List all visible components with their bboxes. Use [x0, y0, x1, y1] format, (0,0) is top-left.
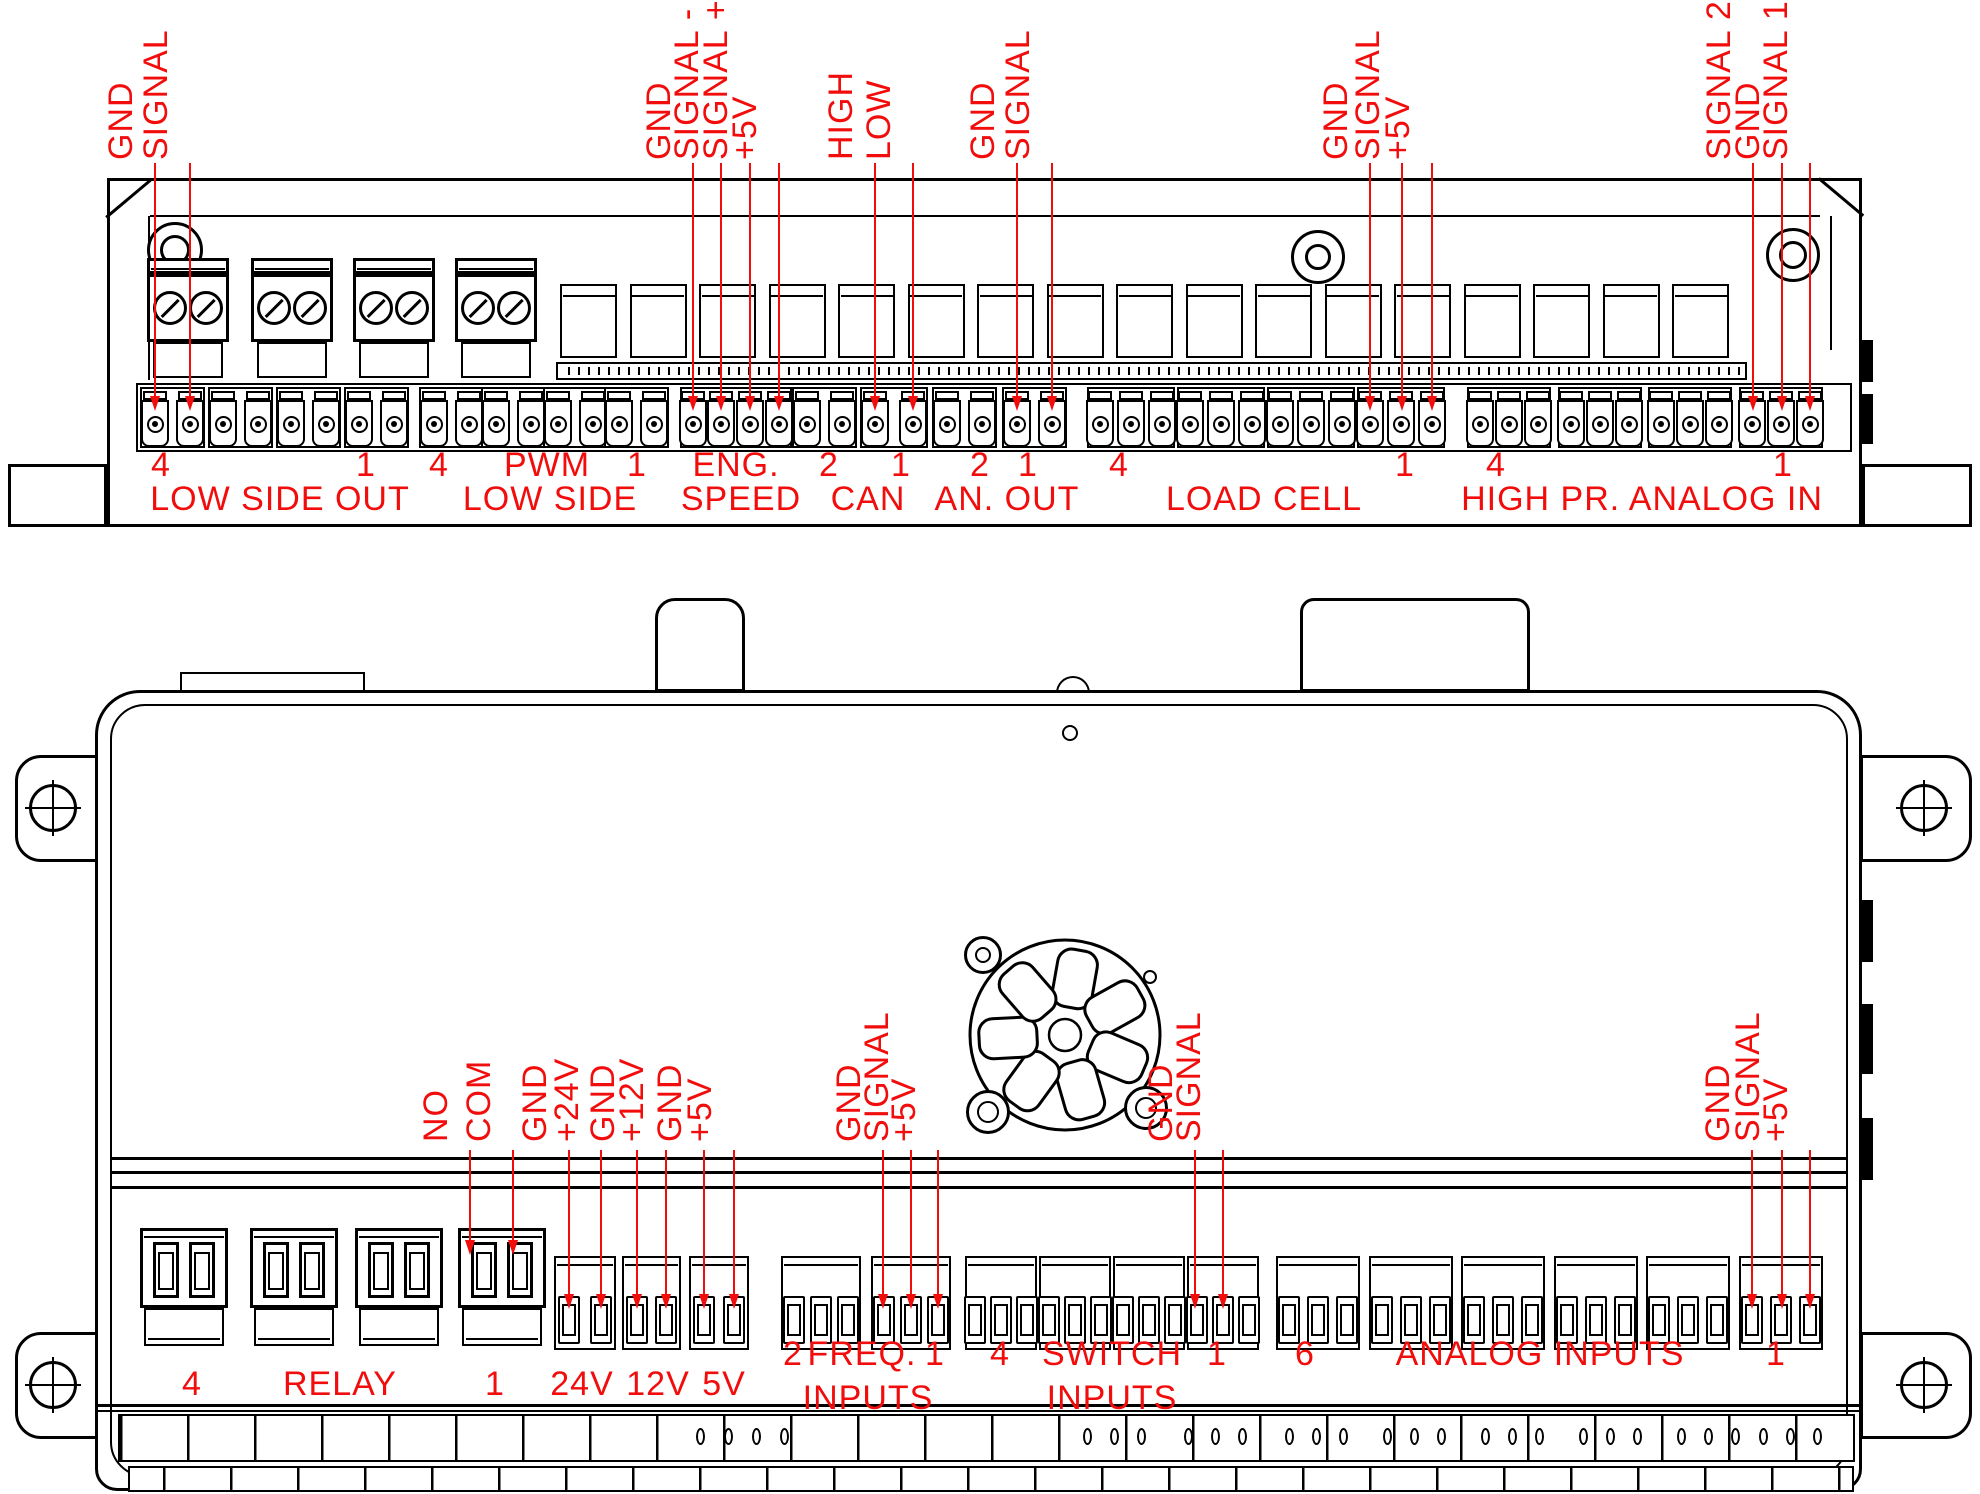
- side-tab: [1862, 394, 1873, 444]
- edge-line: [1397, 295, 1449, 297]
- section-label-switch: SWITCH: [1042, 1336, 1182, 1372]
- vent-hole: [1383, 1428, 1392, 1445]
- edge-line: [1649, 1264, 1727, 1266]
- pin-clip: [246, 391, 270, 400]
- edge-line: [357, 268, 431, 270]
- fan-boss-small: [1143, 970, 1157, 984]
- edge-line: [258, 1338, 330, 1340]
- vent-hole: [1238, 1428, 1247, 1445]
- pin-slot: [1652, 1304, 1666, 1336]
- pin-clip: [279, 391, 303, 400]
- channel-number: 1: [1018, 447, 1038, 483]
- fan-boss-hole: [975, 947, 991, 963]
- leader-line: [568, 1150, 570, 1294]
- leader-arrowhead: [1012, 396, 1022, 411]
- edge-line: [1923, 1357, 1925, 1413]
- leader-arrowhead: [1218, 1294, 1228, 1309]
- pin-center: [776, 421, 782, 427]
- case-post: [655, 598, 745, 692]
- pin-slot: [1068, 1304, 1082, 1336]
- pin-center: [690, 421, 696, 427]
- leader-line: [600, 1150, 602, 1294]
- channel-number: 1: [925, 1336, 945, 1372]
- pin-slot: [1375, 1304, 1389, 1336]
- pin-center: [431, 421, 437, 427]
- leader-line: [1401, 163, 1403, 396]
- pin-center: [391, 421, 397, 427]
- edge-line: [1466, 295, 1518, 297]
- pin-label-24v: +24V: [550, 1058, 584, 1142]
- edge-line: [1557, 1264, 1635, 1266]
- fan-boss-hole: [977, 1101, 999, 1123]
- leader-line: [1051, 163, 1053, 396]
- pin-center: [1687, 421, 1693, 427]
- pin-center: [555, 421, 561, 427]
- edge-line: [95, 1404, 1862, 1407]
- vent-hole: [752, 1428, 761, 1445]
- pin-clip: [546, 391, 570, 400]
- pin-clip: [1240, 391, 1264, 400]
- section-label-pwm: PWM: [504, 447, 590, 483]
- section-label-relay: RELAY: [283, 1366, 397, 1402]
- leader-arrowhead: [465, 1240, 475, 1255]
- pin-clip: [1150, 391, 1174, 400]
- pin-slot: [1340, 1304, 1354, 1336]
- leader-line: [1752, 163, 1754, 396]
- pin-center: [1597, 421, 1603, 427]
- leader-arrowhead: [870, 396, 880, 411]
- pin-center: [1658, 421, 1664, 427]
- vent-hole: [1339, 1428, 1348, 1445]
- edge-line: [255, 268, 329, 270]
- pin-center: [1367, 421, 1373, 427]
- leader-line: [1194, 1150, 1196, 1294]
- case-block: [1300, 598, 1530, 692]
- leader-arrowhead: [716, 396, 726, 411]
- pin-clip: [1559, 391, 1583, 400]
- leader-arrowhead: [699, 1294, 709, 1309]
- vent-hole: [1579, 1428, 1588, 1445]
- pin-clip: [1468, 391, 1492, 400]
- channel-number: 4: [182, 1366, 202, 1402]
- pin-center: [651, 421, 657, 427]
- pin-slot: [1242, 1304, 1256, 1336]
- side-tab: [1862, 1118, 1873, 1180]
- edge-line: [1605, 295, 1657, 297]
- section-label-eng: ENG.: [692, 447, 779, 483]
- vent-hole: [1731, 1428, 1740, 1445]
- pin-label-gnd: GND: [1319, 81, 1353, 160]
- pin-center: [1014, 421, 1020, 427]
- edge-line: [466, 1338, 538, 1340]
- relay-tab: [254, 1308, 334, 1346]
- edge-line: [462, 1236, 542, 1238]
- pin-label-5v: +5V: [683, 1078, 717, 1142]
- circle-mark: [1779, 241, 1807, 269]
- pin-clip: [970, 391, 994, 400]
- pin-center: [255, 421, 261, 427]
- leader-arrowhead: [596, 1294, 606, 1309]
- leader-arrowhead: [564, 1294, 574, 1309]
- pin-center: [590, 421, 596, 427]
- pin-slot: [1710, 1304, 1724, 1336]
- leader-line: [912, 163, 914, 396]
- pin-clip: [1209, 391, 1233, 400]
- pin-center: [718, 421, 724, 427]
- leader-arrowhead: [1748, 396, 1758, 411]
- section-label-freq-inputs-2: INPUTS: [803, 1380, 934, 1416]
- pin-slot: [1311, 1304, 1325, 1336]
- pin-clip: [1617, 391, 1641, 400]
- leader-line: [1016, 163, 1018, 396]
- pin-center: [1398, 421, 1404, 427]
- section-label-24v: 24V: [550, 1366, 614, 1402]
- section-label-analog-inputs: ANALOG INPUTS: [1396, 1336, 1685, 1372]
- pin-slot: [1282, 1304, 1296, 1336]
- edge-line: [632, 295, 684, 297]
- edge-line: [625, 1264, 678, 1266]
- pin-clip: [347, 391, 371, 400]
- front-strip-row: [118, 1414, 1855, 1462]
- leader-arrowhead: [774, 396, 784, 411]
- leader-line: [749, 163, 751, 396]
- terminal-base: [461, 342, 531, 378]
- pin-slot: [1433, 1304, 1447, 1336]
- screw-terminal-top: [147, 258, 229, 274]
- vent-hole: [1285, 1428, 1294, 1445]
- edge-line: [702, 295, 754, 297]
- screw-terminal-top: [353, 258, 435, 274]
- section-label-low-side-out: LOW SIDE OUT: [150, 481, 409, 517]
- edge-line: [1372, 1264, 1450, 1266]
- pin-slot: [1560, 1304, 1574, 1336]
- channel-number: 1: [1766, 1336, 1786, 1372]
- channel-number: 6: [1295, 1336, 1315, 1372]
- edge-line: [1119, 295, 1171, 297]
- leader-line: [910, 1150, 912, 1294]
- pin-label-5v: +5V: [887, 1078, 921, 1142]
- pin-center: [872, 421, 878, 427]
- pin-slot: [1589, 1304, 1603, 1336]
- relay-tab: [462, 1308, 542, 1346]
- leader-line: [665, 1150, 667, 1294]
- pin-label-5v: +5V: [1759, 1078, 1793, 1142]
- pin-slot: [814, 1304, 828, 1336]
- pin-center: [1807, 421, 1813, 427]
- leader-line: [1809, 163, 1811, 396]
- leader-line: [1809, 1150, 1811, 1294]
- pin-clip: [1588, 391, 1612, 400]
- relay-slot: [512, 1252, 528, 1290]
- terminal-base: [257, 342, 327, 378]
- pin-clip: [382, 391, 406, 400]
- pin-slot: [1168, 1304, 1182, 1336]
- edge-line: [110, 1171, 1848, 1174]
- pin-clip: [1178, 391, 1202, 400]
- pin-center: [220, 421, 226, 427]
- leader-arrowhead: [1427, 396, 1437, 411]
- pin-slot: [1404, 1304, 1418, 1336]
- edge-line: [1675, 295, 1727, 297]
- leader-arrowhead: [1047, 396, 1057, 411]
- pin-center: [1535, 421, 1541, 427]
- pin-slot: [1094, 1304, 1108, 1336]
- pin-center: [187, 421, 193, 427]
- leader-arrowhead: [745, 396, 755, 411]
- pin-label-signal: SIGNAL: [1172, 1011, 1206, 1142]
- pin-clip: [1330, 391, 1354, 400]
- edge-line: [1464, 1264, 1542, 1266]
- leader-line: [512, 1150, 514, 1240]
- channel-number: 2: [970, 447, 990, 483]
- edge-line: [1923, 780, 1925, 836]
- edge-line: [1188, 295, 1240, 297]
- channel-number: 4: [1486, 447, 1506, 483]
- pin-label-gnd: GND: [518, 1063, 552, 1142]
- leader-arrowhead: [1190, 1294, 1200, 1309]
- section-label-can: CAN: [831, 481, 906, 517]
- leader-arrowhead: [632, 1294, 642, 1309]
- channel-number: 1: [356, 447, 376, 483]
- pin-center: [1187, 421, 1193, 427]
- screw-terminal-top: [455, 258, 537, 274]
- pin-clip: [795, 391, 819, 400]
- pin-label-no: NO: [419, 1089, 453, 1142]
- pin-slot: [1020, 1304, 1034, 1336]
- pin-clip: [607, 391, 631, 400]
- leader-line: [189, 163, 191, 396]
- edge-line: [784, 1264, 858, 1266]
- vent-hole: [1312, 1428, 1321, 1445]
- side-tab: [1862, 340, 1873, 382]
- pin-center: [839, 421, 845, 427]
- hatched-rail: [556, 362, 1747, 380]
- vent-hole: [696, 1428, 705, 1445]
- pin-slot: [1042, 1304, 1056, 1336]
- pin-slot: [1496, 1304, 1510, 1336]
- channel-number: 1: [627, 447, 647, 483]
- pin-center: [493, 421, 499, 427]
- leader-line: [154, 163, 156, 396]
- terminal-base: [153, 342, 223, 378]
- leader-line: [1431, 163, 1433, 396]
- pin-center: [910, 421, 916, 427]
- leader-arrowhead: [906, 1294, 916, 1309]
- relay-slot: [194, 1252, 210, 1290]
- leader-line: [778, 163, 780, 396]
- pin-label-com: COM: [462, 1060, 496, 1142]
- section-label-an-out: AN. OUT: [935, 481, 1080, 517]
- pin-center: [747, 421, 753, 427]
- edge-line: [144, 1236, 224, 1238]
- edge-line: [968, 1264, 1034, 1266]
- vent-hole: [724, 1428, 733, 1445]
- circle-mark: [1305, 244, 1331, 270]
- section-label-low-side: LOW SIDE: [463, 481, 637, 517]
- leader-line: [1751, 1150, 1753, 1294]
- pin-slot: [841, 1304, 855, 1336]
- edge-line: [254, 1236, 334, 1238]
- leader-line: [1222, 1150, 1224, 1294]
- mounting-ear: [1862, 464, 1972, 527]
- pin-slot: [787, 1304, 801, 1336]
- pin-center: [1218, 421, 1224, 427]
- vent-hole: [1211, 1428, 1220, 1445]
- pin-clip: [1088, 391, 1112, 400]
- pin-clip: [581, 391, 605, 400]
- vent-hole: [1110, 1428, 1119, 1445]
- pin-center: [1568, 421, 1574, 427]
- pin-slot: [1681, 1304, 1695, 1336]
- leader-line: [882, 1150, 884, 1294]
- pin-center: [1277, 421, 1283, 427]
- section-label-load-cell: LOAD CELL: [1166, 481, 1362, 517]
- pin-label-5v: +5V: [728, 96, 762, 160]
- channel-number: 4: [990, 1336, 1010, 1372]
- pin-center: [323, 421, 329, 427]
- pin-slot: [968, 1304, 982, 1336]
- edge-line: [692, 1264, 746, 1266]
- pin-center: [1339, 421, 1345, 427]
- vent-hole: [1184, 1428, 1193, 1445]
- edge-line: [359, 1236, 439, 1238]
- leader-line: [720, 163, 722, 396]
- vent-hole: [1759, 1428, 1768, 1445]
- leader-line: [636, 1150, 638, 1294]
- channel-number: 1: [1207, 1336, 1227, 1372]
- leader-arrowhead: [1365, 396, 1375, 411]
- pin-clip: [211, 391, 235, 400]
- pin-center: [1249, 421, 1255, 427]
- pin-clip: [1268, 391, 1292, 400]
- pin-center: [1308, 421, 1314, 427]
- pin-center: [979, 421, 985, 427]
- section-label-switch-inputs-2: INPUTS: [1047, 1380, 1178, 1416]
- vent-hole: [1677, 1428, 1686, 1445]
- pin-clip: [1649, 391, 1673, 400]
- pin-label-signal: SIGNAL: [1001, 29, 1035, 160]
- leader-arrowhead: [185, 396, 195, 411]
- screw-terminal-top: [251, 258, 333, 274]
- pin-center: [804, 421, 810, 427]
- edge-line: [52, 780, 54, 836]
- leader-arrowhead: [933, 1294, 943, 1309]
- pin-label-signal1: SIGNAL 1: [1759, 0, 1793, 160]
- leader-line: [874, 163, 876, 396]
- edge-line: [557, 1264, 613, 1266]
- pin-clip: [314, 391, 338, 400]
- leader-arrowhead: [688, 396, 698, 411]
- leader-line: [733, 1150, 735, 1294]
- pin-center: [1159, 421, 1165, 427]
- channel-number: 4: [151, 447, 171, 483]
- edge-line: [1116, 1264, 1182, 1266]
- leader-arrowhead: [1777, 1294, 1787, 1309]
- relay-slot: [158, 1252, 174, 1290]
- edge-line: [1042, 1264, 1108, 1266]
- leader-arrowhead: [150, 396, 160, 411]
- section-label-5v: 5V: [702, 1366, 746, 1402]
- terminal-base: [359, 342, 429, 378]
- pin-clip: [1119, 391, 1143, 400]
- pin-label-low: LOW: [862, 80, 896, 160]
- side-tab: [1862, 900, 1873, 962]
- pin-clip: [1299, 391, 1323, 400]
- pin-slot: [994, 1304, 1008, 1336]
- pin-clip: [1678, 391, 1702, 400]
- pin-clip: [422, 391, 446, 400]
- edge-line: [52, 1357, 54, 1413]
- vent-hole: [1410, 1428, 1419, 1445]
- vent-hole: [1535, 1428, 1544, 1445]
- edge-line: [95, 1410, 1862, 1412]
- controller-terminal-drawing: GND SIGNAL GND SIGNAL - SIGNAL + +5V HIG…: [0, 0, 1980, 1494]
- relay-tab: [359, 1308, 439, 1346]
- channel-number: 1: [891, 447, 911, 483]
- pin-center: [466, 421, 472, 427]
- vent-hole: [1813, 1428, 1822, 1445]
- leader-arrowhead: [1805, 1294, 1815, 1309]
- leader-line: [692, 163, 694, 396]
- pin-center: [944, 421, 950, 427]
- vent-hole: [1786, 1428, 1795, 1445]
- front-strip-row: [128, 1466, 1854, 1492]
- side-tab: [1862, 1004, 1873, 1074]
- pin-center: [288, 421, 294, 427]
- pin-clip: [1497, 391, 1521, 400]
- edge-line: [1049, 295, 1101, 297]
- leader-line: [469, 1150, 471, 1240]
- pin-label-signal: SIGNAL: [139, 29, 173, 160]
- pin-clip: [457, 391, 481, 400]
- channel-number: 4: [429, 447, 449, 483]
- edge-line: [841, 295, 893, 297]
- leader-arrowhead: [1805, 396, 1815, 411]
- pin-center: [356, 421, 362, 427]
- relay-slot: [409, 1252, 425, 1290]
- pin-slot: [1467, 1304, 1481, 1336]
- pin-center: [152, 421, 158, 427]
- leader-arrowhead: [508, 1240, 518, 1255]
- edge-line: [910, 295, 962, 297]
- edge-line: [110, 1186, 1848, 1189]
- leader-arrowhead: [908, 396, 918, 411]
- leader-arrowhead: [729, 1294, 739, 1309]
- relay-slot: [476, 1252, 492, 1290]
- pin-center: [1429, 421, 1435, 427]
- vent-hole: [1137, 1428, 1146, 1445]
- leader-arrowhead: [1397, 396, 1407, 411]
- relay-slot: [268, 1252, 284, 1290]
- section-label-12v: 12V: [626, 1366, 690, 1402]
- leader-line: [937, 1150, 939, 1294]
- channel-number: 1: [1395, 447, 1415, 483]
- vent-hole: [1437, 1428, 1446, 1445]
- edge-line: [148, 1338, 220, 1340]
- pin-slot: [1618, 1304, 1632, 1336]
- leader-line: [1781, 163, 1783, 396]
- section-label-high-pr-analog-in: HIGH PR. ANALOG IN: [1461, 481, 1823, 517]
- vent-hole: [1704, 1428, 1713, 1445]
- pin-label-high: HIGH: [824, 71, 858, 160]
- pin-center: [1049, 421, 1055, 427]
- channel-number: 4: [1109, 447, 1129, 483]
- relay-slot: [304, 1252, 320, 1290]
- vent-hole: [1508, 1428, 1517, 1445]
- pin-slot: [1525, 1304, 1539, 1336]
- vent-hole: [1633, 1428, 1642, 1445]
- vent-hole: [1481, 1428, 1490, 1445]
